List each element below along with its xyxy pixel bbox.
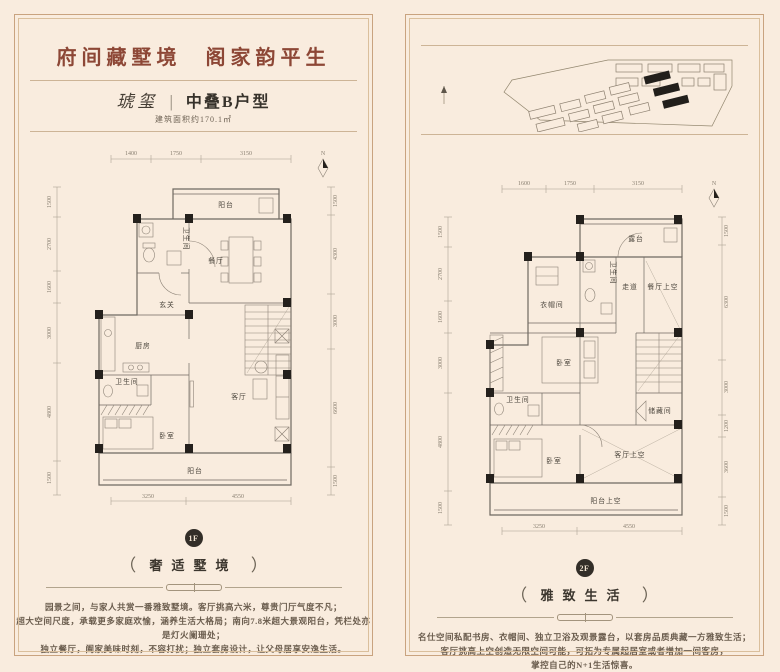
header-divider-bottom (30, 131, 357, 132)
room-label-storage: 储藏间 (648, 406, 671, 415)
dim-label: 2700 (438, 268, 444, 280)
divider-ornament-icon (557, 614, 613, 621)
panel-floor-1: 府间藏墅境 阁家韵平生 琥玺 | 中叠B户型 建筑面积约170.1㎡ 1400 … (14, 14, 373, 656)
room-label-terrace: 露台 (628, 234, 644, 243)
dims-top: 1600 1750 3150 (502, 181, 682, 193)
dim-label: 3000 (724, 381, 730, 393)
dims-left: 1500 2700 1600 3000 4800 1500 (47, 187, 61, 495)
dim-label: 3150 (632, 181, 644, 187)
stairs-1f (245, 305, 291, 375)
dim-label: 3600 (724, 461, 730, 473)
dim-label: 4800 (47, 406, 53, 418)
brochure-page: { "page": { "bg": "#f9ecde", "accent": "… (0, 0, 780, 672)
page-title: 府间藏墅境 阁家韵平生 (15, 15, 372, 71)
room-label-kitchen: 厨房 (135, 341, 151, 350)
paren-close: ） (251, 556, 268, 575)
north-arrow-icon: N (709, 181, 719, 207)
stairs-2f (636, 333, 682, 393)
room-label-bedroom-master: 卧室 (556, 358, 572, 367)
subtitle: 琥玺 | 中叠B户型 (15, 87, 372, 112)
dim-label: 6300 (724, 296, 730, 308)
dim-label: 3150 (240, 151, 252, 157)
fixtures-2f (490, 260, 680, 479)
dim-label: 3000 (47, 327, 53, 339)
header-divider-top (30, 80, 357, 81)
room-label-bath-top: 卫生间 (609, 261, 618, 284)
dim-label: 3250 (533, 524, 545, 530)
right-footer: 2F （ 雅致生活 ） 名仕空间私配书房、衣帽间、独立卫浴及观景露台，以套房品质… (406, 559, 763, 672)
dim-label: 3250 (142, 494, 154, 500)
floor-plan-1f: 1400 1750 3150 N 1500 2700 1600 3000 480… (39, 143, 349, 513)
dim-label: 1600 (518, 181, 530, 187)
compass-icon (441, 86, 447, 104)
room-label-cloakroom: 衣帽间 (540, 300, 563, 309)
dim-label: 1750 (564, 181, 576, 187)
dim-label: 1500 (438, 502, 444, 514)
left-header: 府间藏墅境 阁家韵平生 琥玺 | 中叠B户型 建筑面积约170.1㎡ (15, 15, 372, 139)
desc-line: 独立餐厅，阖家美味时刻，不容打扰；独立套房设计，让父母居享安逸生活。 (15, 642, 372, 656)
dim-label: 1500 (724, 505, 730, 517)
left-footer: 1F （ 奢适墅境 ） 园景之间，与家人共赏一番雅致墅境。客厅挑高六米，尊贵门厅… (15, 529, 372, 656)
title-part-2: 阁家韵平生 (206, 47, 331, 69)
dims-left: 1500 2700 1600 3000 4800 1500 (438, 217, 452, 525)
room-label-dining-void: 餐厅上空 (647, 282, 678, 291)
section-label-1f: （ 奢适墅境 ） (15, 551, 372, 576)
fixtures-1f (101, 223, 289, 449)
dims-right: 1500 4300 3000 6600 1500 (327, 187, 339, 495)
room-label-balcony-low: 阳台 (187, 466, 203, 475)
north-arrow-icon: N (318, 151, 328, 177)
dim-label: 4300 (333, 248, 339, 260)
desc-line: 掌控自己的N+1生活惊喜。 (406, 658, 763, 672)
room-label-corridor: 走道 (622, 282, 638, 291)
divider-ornament-icon (166, 584, 222, 591)
dims-right: 1500 6300 3000 1200 3600 1500 (718, 217, 730, 525)
dim-label: 3000 (333, 315, 339, 327)
dim-label: 4800 (438, 436, 444, 448)
walls-2f (490, 219, 682, 515)
panel-floor-2: 1600 1750 3150 N 1500 2700 1600 3000 480… (405, 14, 764, 656)
room-label-bedroom: 卧室 (159, 431, 175, 440)
dim-label: 1500 (47, 472, 53, 484)
room-label-bath-low: 卫生间 (115, 377, 138, 386)
description-2f: 名仕空间私配书房、衣帽间、独立卫浴及观景露台，以套房品质典藏一方雅致生活； 客厅… (406, 630, 763, 672)
desc-line: 名仕空间私配书房、衣帽间、独立卫浴及观景露台，以套房品质典藏一方雅致生活； (406, 630, 763, 644)
site-plan-map (420, 48, 750, 132)
floor-badge-2f: 2F (576, 559, 594, 577)
highlighted-building (662, 95, 689, 109)
brand-name: 琥玺 (116, 92, 158, 111)
dim-label: 4550 (232, 494, 244, 500)
dim-label: 6600 (333, 402, 339, 414)
site-divider-top (421, 45, 748, 46)
desc-line: 园景之间，与家人共赏一番雅致墅境。客厅挑高六米，尊贵门厅气度不凡； (15, 600, 372, 614)
room-label-dining: 餐厅 (208, 256, 224, 265)
room-label-living-void: 客厅上空 (614, 450, 645, 459)
section-label-2f: （ 雅致生活 ） (406, 581, 763, 606)
dim-label: 1200 (724, 420, 730, 432)
room-label-balcony-void: 阳台上空 (590, 496, 621, 505)
dim-label: 1500 (47, 196, 53, 208)
ornament-divider (46, 584, 342, 591)
dim-label: 2700 (47, 238, 53, 250)
room-label-living: 客厅 (231, 392, 247, 401)
dim-label: 1500 (438, 226, 444, 238)
svg-text:N: N (320, 151, 325, 157)
floor-plan-2f: 1600 1750 3150 N 1500 2700 1600 3000 480… (430, 173, 740, 543)
dim-label: 1400 (125, 151, 137, 157)
site-divider-bottom (421, 134, 748, 135)
description-1f: 园景之间，与家人共赏一番雅致墅境。客厅挑高六米，尊贵门厅气度不凡； 超大空间尺度… (15, 600, 372, 656)
dim-label: 1600 (438, 311, 444, 323)
svg-text:N: N (711, 181, 716, 187)
room-label-foyer: 玄关 (159, 300, 175, 309)
desc-line: 超大空间尺度，承载更多家庭欢愉，涵养生活大格局；南向7.8米超大景观阳台，凭栏处… (15, 614, 372, 642)
ornament-divider (437, 614, 733, 621)
title-part-1: 府间藏墅境 (57, 47, 182, 69)
site-buildings (527, 64, 726, 132)
section-label-text: 奢适墅境 (149, 558, 237, 573)
floor-badge-1f: 1F (185, 529, 203, 547)
dim-label: 1500 (333, 475, 339, 487)
desc-line: 客厅挑高上空创造无限空间可能，可拓为专属起居室或者增加一间客房， (406, 644, 763, 658)
dims-bottom: 3250 4550 (502, 524, 682, 535)
paren-open: （ (510, 586, 527, 605)
room-label-balcony-top: 阳台 (218, 200, 234, 209)
dim-label: 1750 (170, 151, 182, 157)
dim-label: 1500 (333, 195, 339, 207)
room-label-bedroom-low: 卧室 (546, 456, 562, 465)
walls-1f (99, 189, 291, 485)
room-label-bath-top: 卫生间 (182, 227, 191, 250)
subtitle-separator: | (169, 92, 174, 111)
dim-label: 4550 (623, 524, 635, 530)
area-note: 建筑面积约170.1㎡ (15, 114, 372, 125)
paren-open: （ (119, 556, 136, 575)
dim-label: 3000 (438, 357, 444, 369)
unit-type-name: 中叠B户型 (186, 94, 271, 111)
dim-label: 1600 (47, 281, 53, 293)
dim-label: 1500 (724, 225, 730, 237)
section-label-text: 雅致生活 (540, 588, 628, 603)
room-label-bath-low: 卫生间 (506, 395, 529, 404)
paren-close: ） (642, 586, 659, 605)
right-header (406, 45, 763, 169)
dims-top: 1400 1750 3150 (111, 151, 291, 163)
dims-bottom: 3250 4550 (111, 494, 291, 505)
